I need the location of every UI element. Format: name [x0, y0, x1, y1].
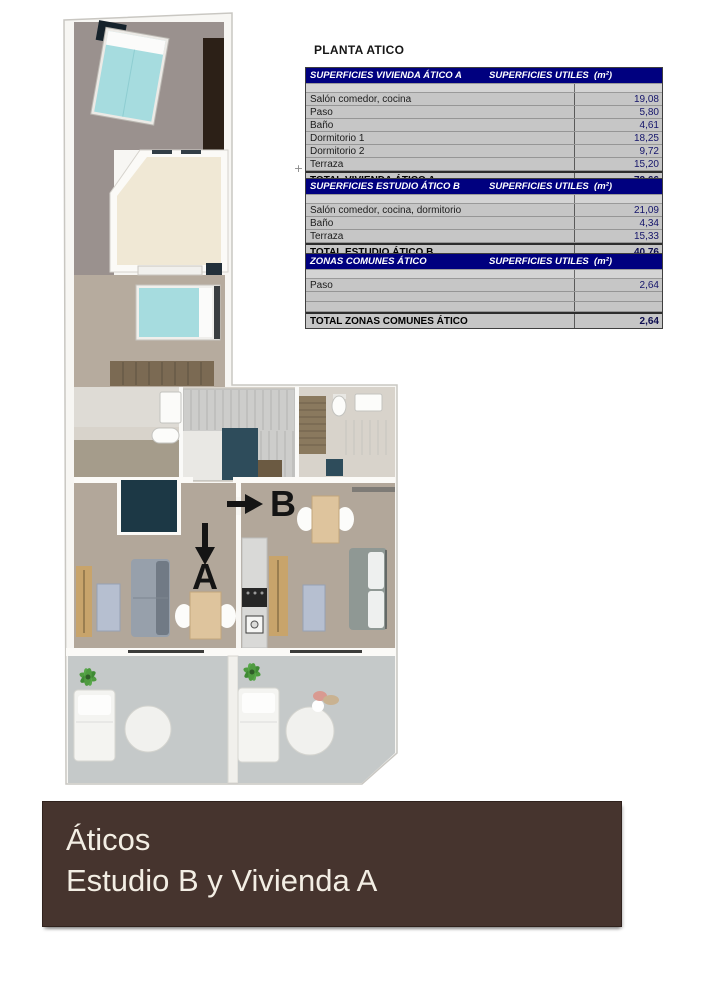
terrace-a [110, 150, 228, 272]
table-vivienda-a: SUPERFICIES VIVIENDA ÁTICO A SUPERFICIES… [305, 67, 663, 188]
rug [303, 585, 325, 631]
table-header-title: SUPERFICIES VIVIENDA ÁTICO A [306, 70, 462, 81]
wardrobe [203, 38, 224, 150]
rug [97, 584, 120, 631]
table-header: SUPERFICIES ESTUDIO ÁTICO B SUPERFICIES … [306, 179, 662, 195]
sun-lounger [74, 690, 115, 761]
footer-line-2: Estudio B y Vivienda A [66, 860, 621, 901]
row-label: Paso [306, 106, 574, 118]
outline-plus-icon: + [293, 163, 304, 174]
row-value: 21,09 [574, 204, 662, 216]
living-b [236, 483, 395, 654]
footer-line-1: Áticos [66, 819, 621, 860]
row-value: 4,61 [574, 119, 662, 131]
wardrobe [110, 361, 214, 386]
sink [355, 394, 382, 411]
table-row: Dormitorio 1 18,25 [306, 132, 662, 145]
unit-b-label: B [270, 483, 296, 524]
sink [160, 392, 181, 423]
terraces [66, 648, 396, 783]
row-value: 9,72 [574, 145, 662, 157]
table-header-units: SUPERFICIES UTILES (m²) [489, 256, 612, 267]
page-title: PLANTA ATICO [314, 43, 404, 57]
sofa [131, 559, 170, 637]
row-label: Baño [306, 217, 574, 229]
table-row: Terraza 15,33 [306, 230, 662, 243]
table-header-title: ZONAS COMUNES ÁTICO [306, 256, 427, 267]
row-value: 19,08 [574, 93, 662, 105]
row-value: 18,25 [574, 132, 662, 144]
round-table [125, 706, 171, 752]
table-header-units: SUPERFICIES UTILES (m²) [489, 181, 612, 192]
table-row: Paso 5,80 [306, 106, 662, 119]
row-value: 15,33 [574, 230, 662, 242]
table-spacer-row [306, 84, 662, 93]
row-label: Terraza [306, 230, 574, 242]
sofa [349, 548, 387, 630]
service-zone [74, 387, 395, 483]
row-value [574, 292, 662, 301]
row-label: Salón comedor, cocina [306, 93, 574, 105]
total-label: TOTAL ZONAS COMUNES ÁTICO [306, 314, 574, 328]
cooktop [242, 588, 267, 607]
table-row: Paso 2,64 [306, 279, 662, 292]
row-value: 4,34 [574, 217, 662, 229]
brochure-page: A B [0, 0, 708, 1000]
table-zonas-comunes: ZONAS COMUNES ÁTICO SUPERFICIES UTILES (… [305, 253, 663, 329]
table-row [306, 302, 662, 312]
kitchen [242, 538, 267, 648]
row-label: Salón comedor, cocina, dormitorio [306, 204, 574, 216]
shower [117, 477, 181, 535]
table-row: Baño 4,61 [306, 119, 662, 132]
table-header: SUPERFICIES VIVIENDA ÁTICO A SUPERFICIES… [306, 68, 662, 84]
row-label: Terraza [306, 158, 574, 170]
table-spacer-row [306, 195, 662, 204]
row-label: Paso [306, 279, 574, 291]
row-label: Dormitorio 2 [306, 145, 574, 157]
table-row: Baño 4,34 [306, 217, 662, 230]
row-label [306, 292, 574, 301]
table-total-row: TOTAL ZONAS COMUNES ÁTICO 2,64 [306, 312, 662, 328]
table-row: Salón comedor, cocina, dormitorio 21,09 [306, 204, 662, 217]
table-estudio-b: SUPERFICIES ESTUDIO ÁTICO B SUPERFICIES … [305, 178, 663, 260]
table-header-title: SUPERFICIES ESTUDIO ÁTICO B [306, 181, 460, 192]
single-bed [136, 285, 220, 340]
table-row: Salón comedor, cocina 19,08 [306, 93, 662, 106]
table-row [306, 292, 662, 302]
toilet [152, 428, 179, 443]
toilet [332, 396, 346, 416]
bedroom-2 [74, 263, 225, 387]
table-header-units: SUPERFICIES UTILES (m²) [489, 70, 612, 81]
row-label: Dormitorio 1 [306, 132, 574, 144]
unit-a-label: A [192, 556, 218, 597]
table-spacer-row [306, 270, 662, 279]
table-header: ZONAS COMUNES ÁTICO SUPERFICIES UTILES (… [306, 254, 662, 270]
table-row: Dormitorio 2 9,72 [306, 145, 662, 158]
row-value [574, 302, 662, 311]
row-value: 15,20 [574, 158, 662, 170]
row-label: Baño [306, 119, 574, 131]
row-value: 5,80 [574, 106, 662, 118]
row-label [306, 302, 574, 311]
row-value: 2,64 [574, 279, 662, 291]
table-row: Terraza 15,20 [306, 158, 662, 171]
sun-lounger [238, 688, 279, 762]
total-value: 2,64 [574, 314, 662, 328]
shower [222, 428, 258, 480]
round-table [286, 707, 334, 755]
footer-banner: Áticos Estudio B y Vivienda A [42, 801, 622, 927]
